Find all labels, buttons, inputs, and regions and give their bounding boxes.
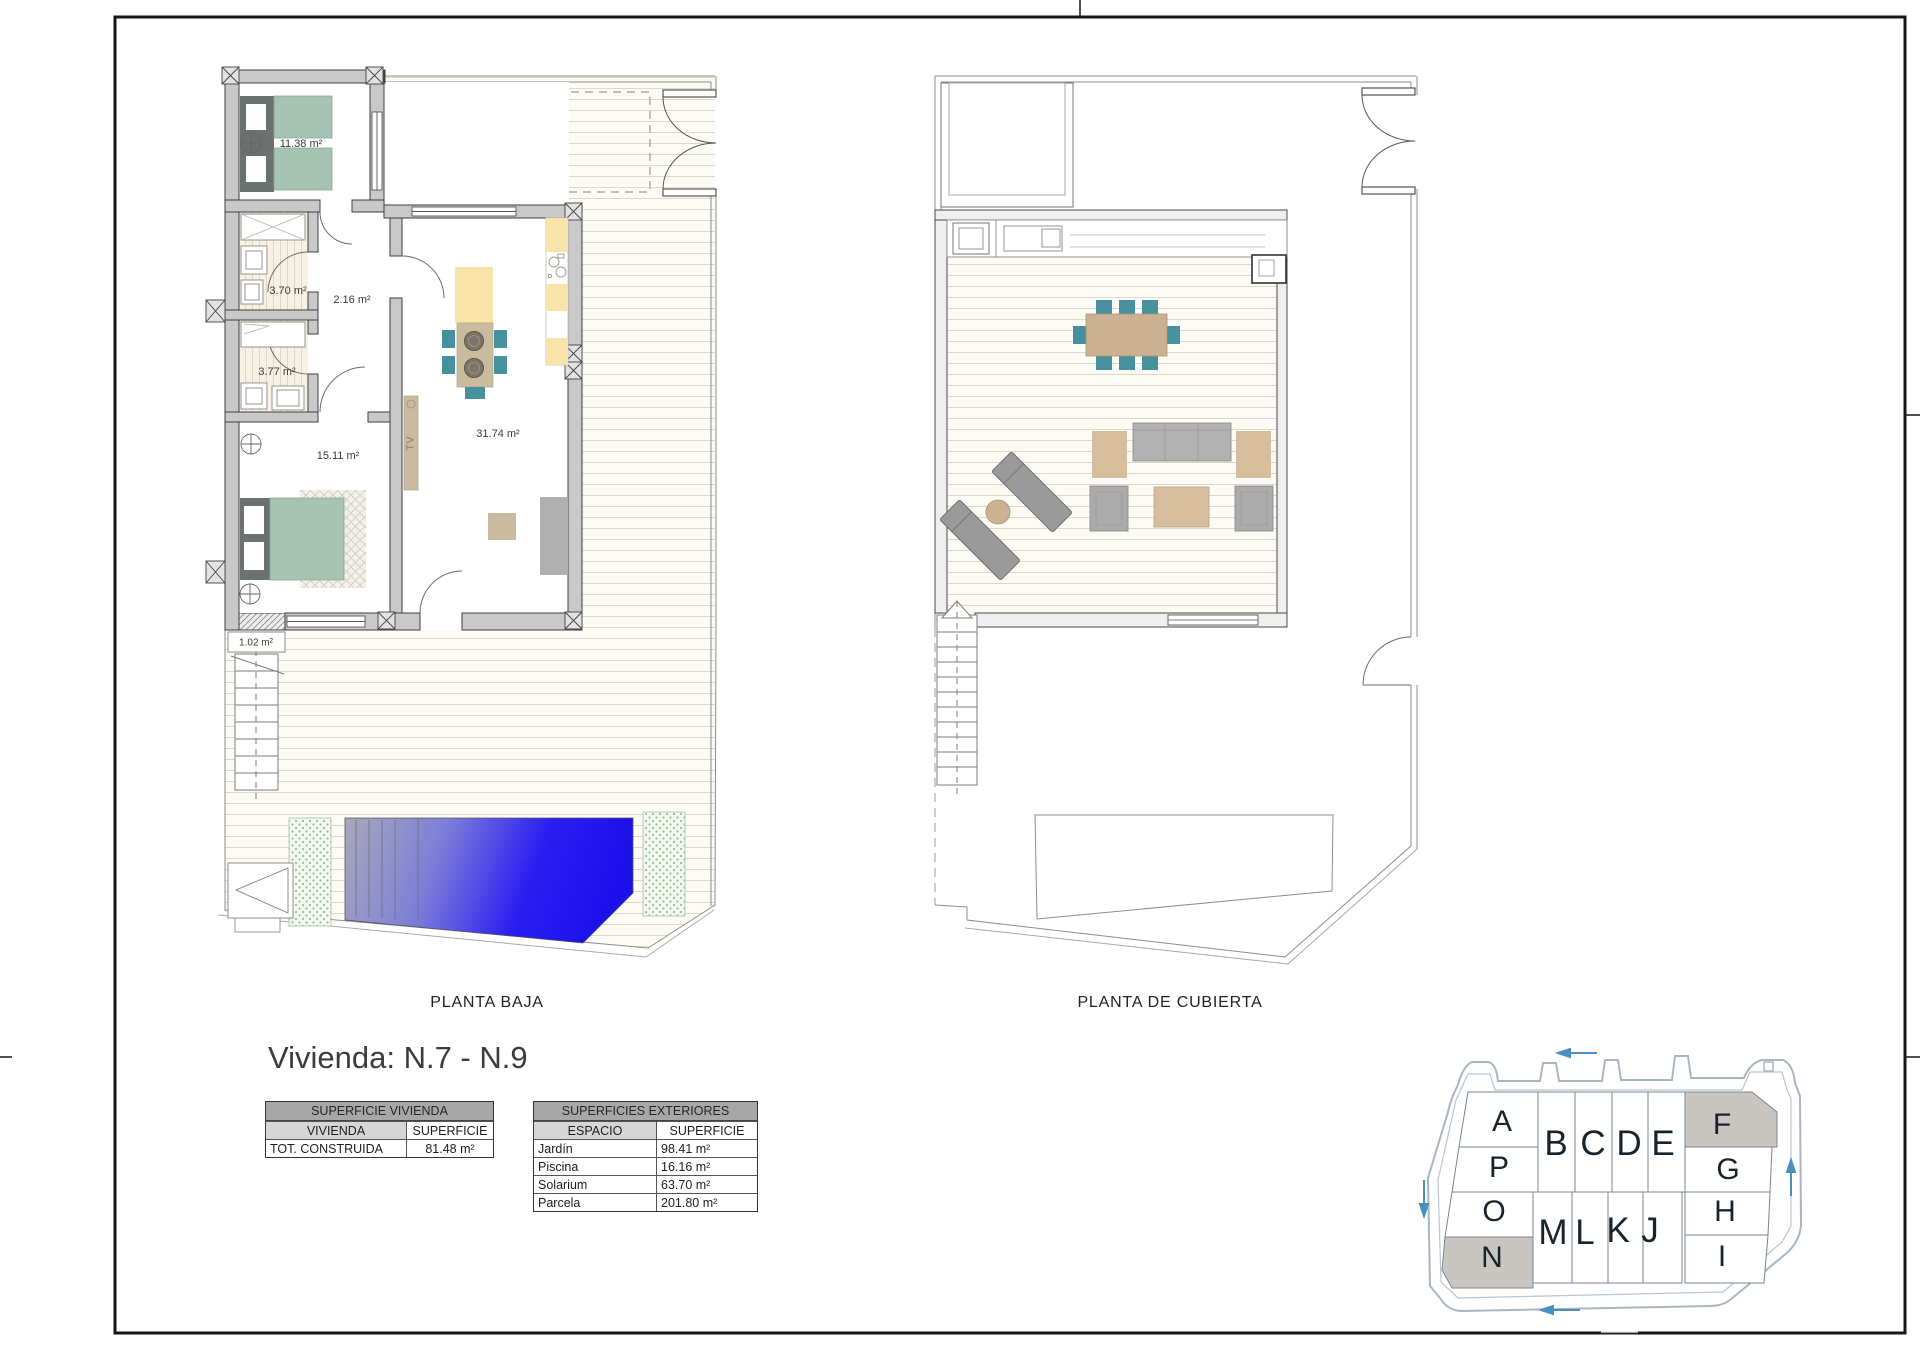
side-gate-arc [1363, 637, 1411, 685]
room-area-bathroom-2: 3.77 m² [258, 366, 295, 378]
plot-I [1685, 1235, 1768, 1283]
roof-entry-door [1362, 88, 1415, 194]
row-label: Piscina [534, 1157, 656, 1175]
plot-label-H: H [1714, 1195, 1736, 1229]
plot-label-C: C [1580, 1124, 1605, 1164]
plot-label-I: I [1718, 1240, 1726, 1274]
plot-label-B: B [1544, 1124, 1567, 1164]
row-label: TOT. CONSTRUIDA [266, 1139, 406, 1157]
plot-label-G: G [1716, 1153, 1739, 1187]
roof-stairs [937, 601, 977, 795]
col-header: VIVIENDA [266, 1121, 406, 1139]
room-area-bedroom-1: 11.38 m² [280, 138, 323, 150]
row-value: 81.48 m² [406, 1139, 493, 1157]
room-area-entry-step: 1.02 m² [239, 638, 273, 649]
planta-baja-plan [206, 67, 716, 957]
plot-label-F: F [1713, 1108, 1731, 1142]
table-header-row: ESPACIO SUPERFICIE [534, 1121, 757, 1139]
room-area-hall: 2.16 m² [333, 294, 370, 306]
row-value: 201.80 m² [656, 1193, 757, 1211]
table-row: Parcela 201.80 m² [534, 1193, 757, 1211]
table-header-row: VIVIENDA SUPERFICIE [266, 1121, 493, 1139]
plot-label-P: P [1489, 1151, 1509, 1185]
row-label: Solarium [534, 1175, 656, 1193]
plot-label-K: K [1606, 1211, 1629, 1251]
col-header: SUPERFICIE [406, 1121, 493, 1139]
plot-label-J: J [1641, 1211, 1659, 1251]
room-area-bathroom-1: 3.70 m² [269, 285, 306, 297]
table-row: TOT. CONSTRUIDA 81.48 m² [266, 1139, 493, 1157]
table-row: Solarium 63.70 m² [534, 1175, 757, 1193]
table-title: SUPERFICIE VIVIENDA [266, 1102, 493, 1121]
table-superficie-vivienda: SUPERFICIE VIVIENDA VIVIENDA SUPERFICIE … [265, 1101, 494, 1158]
row-value: 63.70 m² [656, 1175, 757, 1193]
col-header: SUPERFICIE [656, 1121, 757, 1139]
roof-box [1252, 255, 1286, 283]
plot-label-E: E [1651, 1124, 1674, 1164]
table-superficies-exteriores: SUPERFICIES EXTERIORES ESPACIO SUPERFICI… [533, 1101, 758, 1212]
pool [345, 818, 633, 943]
plot-label-L: L [1575, 1213, 1594, 1253]
caption-planta-cubierta: PLANTA DE CUBIERTA [1077, 994, 1262, 1012]
page-title: Vivienda: N.7 - N.9 [268, 1040, 528, 1076]
table-title: SUPERFICIES EXTERIORES [534, 1102, 757, 1121]
row-label: Jardín [534, 1139, 656, 1157]
garden-bed-left [289, 818, 331, 926]
planta-cubierta-plan [935, 76, 1417, 964]
stair-bulkhead [941, 83, 1073, 207]
table-row: Jardín 98.41 m² [534, 1139, 757, 1157]
caption-planta-baja: PLANTA BAJA [430, 994, 543, 1012]
col-header: ESPACIO [534, 1121, 656, 1139]
tv-label: TV [406, 436, 417, 451]
plot-label-N: N [1481, 1241, 1503, 1275]
garden-bed-right [643, 812, 685, 916]
row-label: Parcela [534, 1193, 656, 1211]
room-area-bedroom-2: 15.11 m² [317, 450, 360, 462]
outdoor-kitchen-counter [947, 220, 1287, 257]
sideboard [488, 513, 516, 540]
solarium-outline [1035, 815, 1333, 919]
plot-label-D: D [1616, 1124, 1641, 1164]
exterior-stairs [231, 650, 284, 800]
drawing-sheet: 11.38 m² 3.70 m² 2.16 m² 3.77 m² 15.11 m… [0, 0, 1920, 1357]
plot-label-A: A [1492, 1105, 1512, 1139]
table-row: Piscina 16.16 m² [534, 1157, 757, 1175]
plot-label-O: O [1482, 1195, 1505, 1229]
kitchen-counter [546, 218, 568, 365]
room-area-living: 31.74 m² [476, 428, 519, 440]
row-value: 98.41 m² [656, 1139, 757, 1157]
plot-label-M: M [1538, 1213, 1567, 1253]
gray-unit [540, 497, 568, 575]
row-value: 16.16 m² [656, 1157, 757, 1175]
site-plan [1420, 1049, 1801, 1314]
garden-marker [228, 863, 293, 918]
